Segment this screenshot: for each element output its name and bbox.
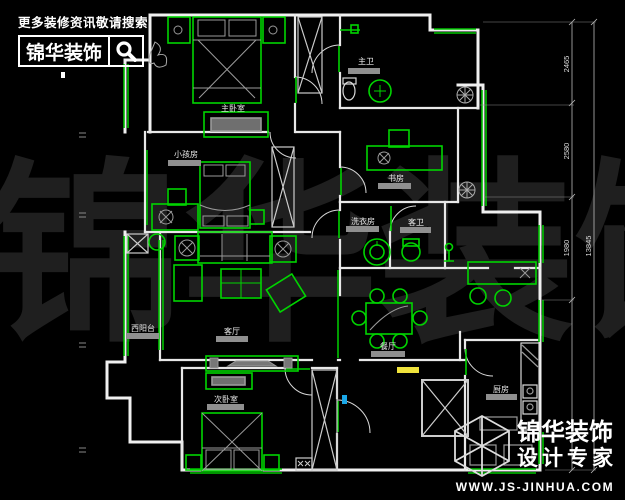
nightstand-kids-icon (250, 210, 264, 224)
outer-walls (107, 15, 540, 470)
tiny-marker (61, 72, 65, 78)
room-label-study: 书房 (388, 173, 404, 183)
label-bar (348, 68, 380, 74)
label-bar (378, 183, 411, 189)
desk-kids-icon (152, 189, 198, 230)
wall-outer-top-block (150, 15, 478, 132)
shower-basin-icon (369, 80, 391, 102)
footer-logo: 锦华装饰 设计专家 WWW.JS-JINHUA.COM (449, 413, 621, 494)
label-bar (216, 336, 248, 342)
room-label-living: 客厅 (224, 326, 240, 336)
blue-highlight (342, 395, 347, 404)
armchair-left-icon (174, 265, 202, 301)
door-arc-laundry (312, 210, 340, 238)
dimension-value: 1980 (562, 240, 571, 257)
door-arc-master-bath (312, 45, 340, 73)
sofa-icon (175, 232, 296, 263)
label-bar (127, 333, 159, 339)
windows (124, 29, 543, 473)
label-bar (400, 227, 431, 233)
desk-study-icon (367, 130, 442, 170)
footer-subtitle: 设计专家 (517, 447, 617, 470)
room-label-kitchen: 厨房 (493, 384, 509, 394)
footer-website: WWW.JS-JINHUA.COM (449, 480, 621, 494)
stove-icon (523, 385, 537, 398)
plant-icon (457, 87, 473, 103)
door-arc-study (340, 167, 366, 193)
dimension-total: 13845 (584, 236, 593, 257)
plant-icon (459, 182, 475, 198)
label-bar (486, 394, 517, 400)
left-dimension-ticks (79, 133, 86, 452)
faucet-icon (340, 25, 360, 33)
search-icon (110, 37, 142, 65)
bed2-icon (186, 413, 279, 471)
wardrobe-bedroom2-icon (312, 370, 337, 470)
door-arc-entry (337, 400, 370, 433)
floorplan-page: 锦 华 装 饰 (0, 0, 625, 500)
cube-logo-icon (449, 413, 515, 477)
header-logo: 更多装修资讯敬请搜索 锦华装饰 (18, 12, 144, 67)
toilet-guest-icon (402, 239, 420, 261)
washer-icon (127, 234, 148, 253)
room-label-guest-bath: 客卫 (408, 217, 424, 227)
room-label-laundry: 洗衣房 (351, 216, 375, 226)
plant-icon (149, 42, 167, 67)
door-arc-bedroom2 (285, 368, 312, 395)
yellow-highlight (397, 367, 419, 373)
bed-kids-icon (200, 162, 250, 228)
counter-hatch (522, 345, 538, 367)
armchair-right-icon (266, 274, 305, 312)
dining-table-icon (352, 289, 427, 348)
plants (149, 42, 475, 198)
coffee-table-icon (221, 269, 261, 298)
label-bar (346, 226, 379, 232)
header-brand-box: 锦华装饰 (18, 35, 144, 67)
dimension-labels: 2465 2580 1980 13845 (562, 56, 593, 257)
wall-outer-bottom-left-steps (107, 232, 182, 470)
room-label-west-balcony: 西阳台 (131, 323, 155, 333)
toilet-master-icon (343, 78, 356, 100)
footer-brand-text: 锦华装饰 (517, 420, 617, 446)
dresser2-icon (206, 373, 252, 389)
dimension-value: 2465 (562, 56, 571, 73)
header-brand-text: 锦华装饰 (20, 37, 108, 65)
door-arc-kitchen (465, 348, 493, 376)
closets (127, 17, 468, 470)
room-label-kids-room: 小孩房 (174, 149, 198, 159)
header-tagline: 更多装修资讯敬请搜索 (18, 12, 144, 31)
dimension-value: 2580 (562, 143, 571, 160)
label-bar (207, 404, 244, 410)
wardrobe-kids-icon (272, 147, 294, 227)
room-label-master-bath: 主卫 (358, 56, 374, 66)
label-bar (371, 351, 405, 357)
room-label-dining: 餐厅 (380, 342, 396, 351)
label-bar (168, 160, 201, 166)
tub-icon (364, 239, 390, 265)
bed-master-icon (168, 17, 285, 103)
room-label-master-bedroom: 主卧室 (221, 103, 245, 113)
room-label-second-bedroom: 次卧室 (214, 394, 238, 404)
